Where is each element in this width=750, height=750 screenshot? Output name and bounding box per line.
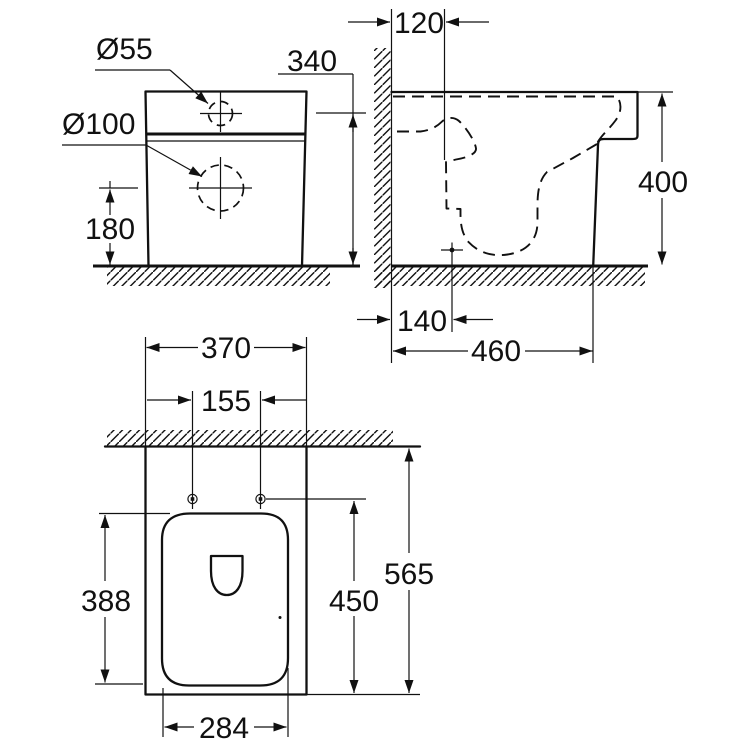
dim-120-label: 120	[394, 7, 444, 40]
dim-370-label: 370	[201, 332, 251, 365]
toilet-dimension-drawing: Ø55 Ø100 180 340	[0, 0, 750, 750]
dim-340-label: 340	[287, 45, 337, 78]
drain-center-dot	[450, 248, 455, 253]
bowl-outline	[162, 514, 288, 686]
technical-drawing-page: Ø55 Ø100 180 340	[0, 0, 750, 750]
trapway-dashed	[393, 118, 597, 255]
dim-180-label: 180	[85, 213, 135, 246]
inner-rim-dashed	[393, 97, 620, 143]
dim-565-label: 565	[384, 558, 434, 591]
front-view: Ø55 Ø100 180 340	[62, 33, 366, 286]
hole-top-leader-arrow	[170, 70, 208, 104]
dim-284-label: 284	[199, 712, 249, 745]
seat-hole-left-center	[191, 497, 195, 501]
toilet-profile-outline	[392, 92, 638, 266]
plan-view: 370 155 388 450 565 284	[81, 332, 434, 745]
dim-388-label: 388	[81, 585, 131, 618]
side-view: 120 400 140 460	[348, 7, 688, 368]
floor-hatching	[376, 267, 645, 286]
stray-dot	[279, 616, 282, 619]
wall-hatching	[374, 48, 391, 288]
floor-hatching	[107, 267, 330, 286]
toilet-body-outline	[146, 92, 307, 267]
dim-400-label: 400	[638, 166, 688, 199]
dim-140-label: 140	[397, 305, 447, 338]
wall-hatching	[107, 430, 393, 447]
seat-hole-right-center	[259, 497, 263, 501]
dim-450-label: 450	[329, 585, 379, 618]
flush-inlet-outline	[211, 556, 243, 595]
dim-155-label: 155	[201, 385, 251, 418]
pan-outline	[146, 447, 307, 695]
hole-top-label: Ø55	[96, 33, 153, 66]
hole-mid-leader-arrow	[146, 145, 202, 177]
dim-460-label: 460	[471, 335, 521, 368]
hole-mid-label: Ø100	[62, 108, 135, 141]
